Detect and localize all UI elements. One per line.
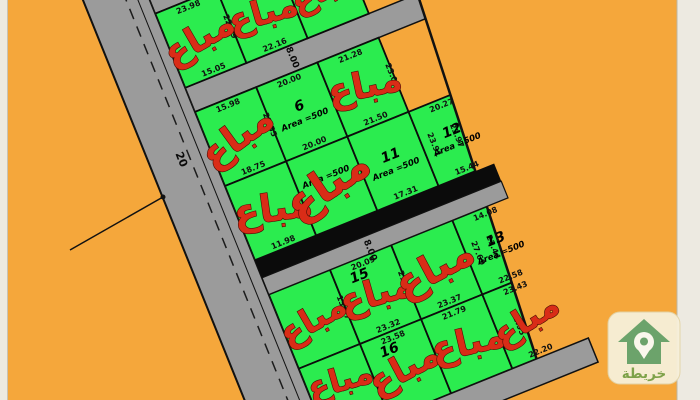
- map-canvas: 23.9815.0522.99مباع22.16مباعمباع15.9818.…: [0, 0, 700, 400]
- logo-wordmark: خريطة: [622, 366, 667, 382]
- pointer-dot: [161, 195, 166, 200]
- subdivision-map-screenshot: 23.9815.0522.99مباع22.16مباعمباع15.9818.…: [0, 0, 700, 400]
- watermark-logo: خريطة: [608, 312, 680, 384]
- left-edge-strip: [0, 0, 7, 400]
